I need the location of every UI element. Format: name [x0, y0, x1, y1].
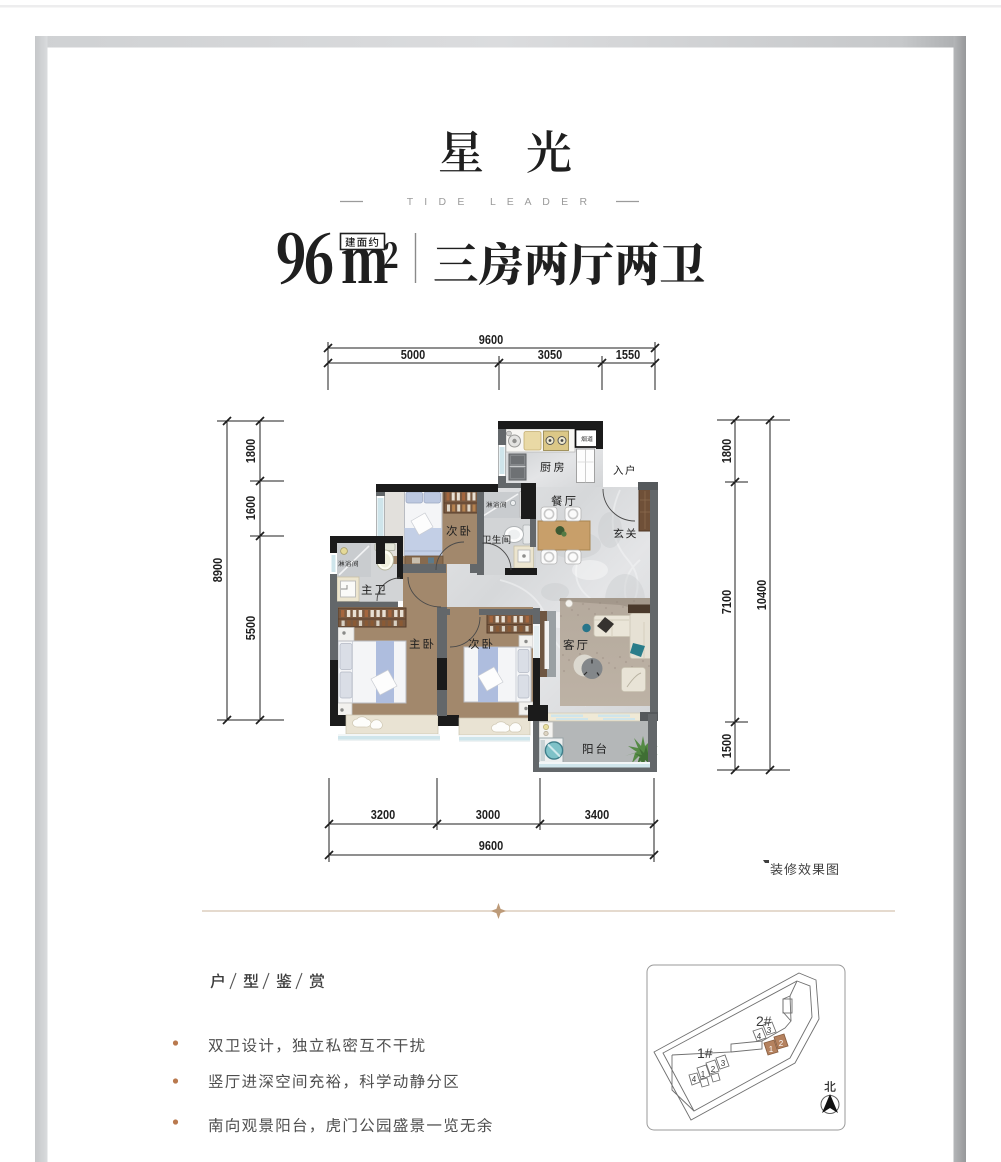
- svg-text:8900: 8900: [211, 558, 225, 582]
- svg-text:3400: 3400: [585, 808, 609, 822]
- svg-text:2#: 2#: [756, 1013, 772, 1029]
- svg-text:1550: 1550: [616, 348, 640, 362]
- svg-text:1: 1: [769, 1045, 774, 1054]
- svg-text:1800: 1800: [720, 439, 734, 463]
- svg-text:4: 4: [692, 1075, 697, 1084]
- svg-text:9600: 9600: [479, 333, 503, 347]
- svg-text:7100: 7100: [720, 590, 734, 614]
- svg-text:3200: 3200: [371, 808, 395, 822]
- svg-text:2: 2: [779, 1039, 784, 1048]
- svg-text:T I D E L E A D E R: T I D E L E A D E R: [407, 196, 591, 208]
- svg-text:3050: 3050: [538, 348, 562, 362]
- svg-text:5000: 5000: [401, 348, 425, 362]
- svg-text:1600: 1600: [244, 496, 258, 520]
- svg-text:1800: 1800: [244, 439, 258, 463]
- svg-text:1#: 1#: [697, 1045, 713, 1061]
- svg-text:4: 4: [757, 1032, 762, 1041]
- svg-text:1500: 1500: [720, 734, 734, 758]
- svg-text:9600: 9600: [479, 839, 503, 853]
- svg-text:3: 3: [721, 1059, 726, 1068]
- svg-text:1: 1: [701, 1070, 706, 1079]
- svg-text:10400: 10400: [755, 580, 769, 611]
- svg-text:3000: 3000: [476, 808, 500, 822]
- svg-text:2: 2: [711, 1065, 716, 1074]
- svg-text:5500: 5500: [244, 616, 258, 640]
